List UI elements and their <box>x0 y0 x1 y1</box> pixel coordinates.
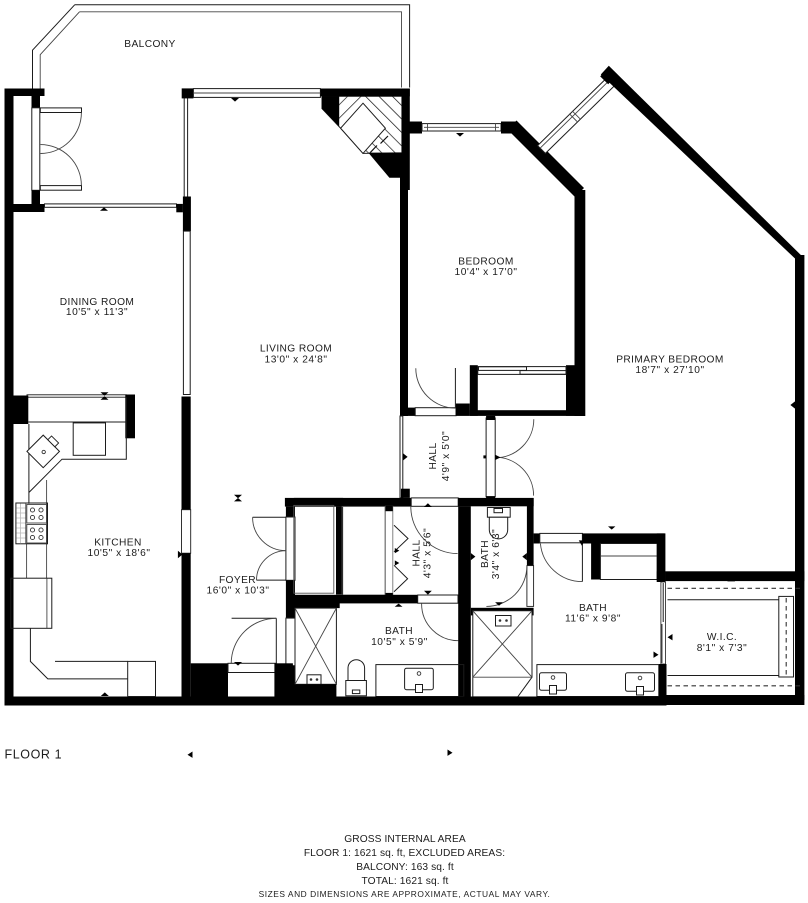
svg-text:10'5" x 18'6": 10'5" x 18'6" <box>87 548 150 559</box>
svg-text:10'4" x 17'0": 10'4" x 17'0" <box>454 267 517 278</box>
svg-text:PRIMARY BEDROOM: PRIMARY BEDROOM <box>616 355 724 366</box>
svg-text:13'0" x 24'8": 13'0" x 24'8" <box>264 354 327 365</box>
svg-text:BATH: BATH <box>385 626 413 637</box>
svg-text:BATH: BATH <box>480 540 491 568</box>
svg-text:W.I.C.: W.I.C. <box>707 632 737 643</box>
svg-text:SIZES AND DIMENSIONS ARE APPRO: SIZES AND DIMENSIONS ARE APPROXIMATE, AC… <box>259 889 551 899</box>
svg-text:11'6" x 9'8": 11'6" x 9'8" <box>565 613 621 624</box>
svg-text:FOYER: FOYER <box>219 575 256 586</box>
svg-text:LIVING ROOM: LIVING ROOM <box>260 344 332 355</box>
svg-text:10'5" x 11'3": 10'5" x 11'3" <box>66 307 128 318</box>
svg-text:4'9" x 5'0": 4'9" x 5'0" <box>441 431 452 482</box>
svg-text:10'5" x 5'9": 10'5" x 5'9" <box>371 637 428 648</box>
svg-text:GROSS INTERNAL AREA: GROSS INTERNAL AREA <box>344 834 466 845</box>
svg-text:16'0" x 10'3": 16'0" x 10'3" <box>206 586 269 597</box>
svg-text:FLOOR 1: FLOOR 1 <box>5 748 63 762</box>
svg-text:FLOOR 1: 1621 sq. ft, EXCLUDED: FLOOR 1: 1621 sq. ft, EXCLUDED AREAS: <box>304 848 505 859</box>
svg-text:3'4" x 6'3": 3'4" x 6'3" <box>491 529 502 580</box>
svg-text:8'1" x 7'3": 8'1" x 7'3" <box>697 643 748 654</box>
svg-text:BATH: BATH <box>579 603 607 614</box>
svg-text:BEDROOM: BEDROOM <box>458 257 513 268</box>
svg-text:TOTAL: 1621 sq. ft: TOTAL: 1621 sq. ft <box>362 876 449 887</box>
svg-text:4'3" x 5'6": 4'3" x 5'6" <box>423 528 434 579</box>
svg-text:BALCONY: BALCONY <box>124 39 176 50</box>
svg-text:18'7" x 27'10": 18'7" x 27'10" <box>635 365 704 376</box>
svg-text:KITCHEN: KITCHEN <box>94 537 142 548</box>
svg-text:HALL: HALL <box>428 442 439 469</box>
svg-text:HALL: HALL <box>412 539 423 566</box>
svg-text:BALCONY: 163 sq. ft: BALCONY: 163 sq. ft <box>356 862 454 873</box>
